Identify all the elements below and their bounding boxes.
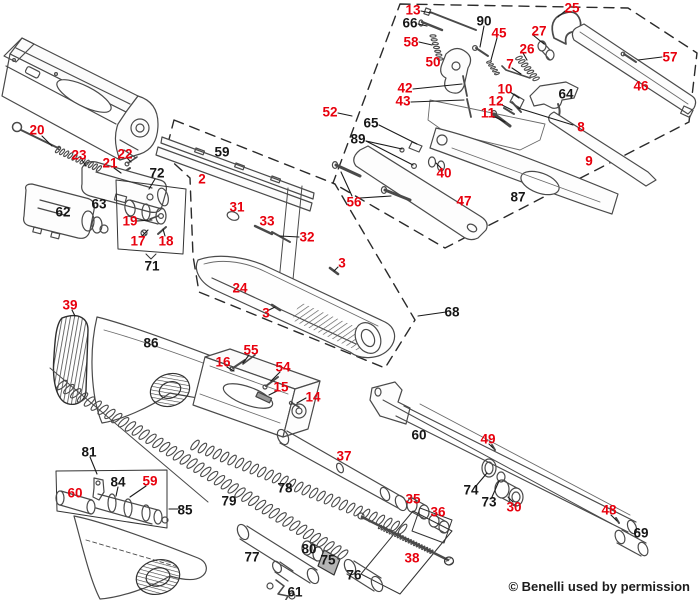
- exploded-diagram: 2023212272592626319171871398631333232436…: [0, 0, 700, 600]
- action-bars-drawing: [156, 137, 314, 211]
- valve-box-85-drawing: [56, 470, 168, 528]
- bottom-parts-row-drawing: [235, 523, 385, 600]
- receiver-drawing: [2, 38, 158, 160]
- pin-20-drawing: [13, 123, 61, 150]
- diagram-line-art: [0, 0, 700, 600]
- trigger-group-drawing: [332, 8, 695, 240]
- copyright-credit: © Benelli used by permission: [508, 579, 690, 594]
- trigger-group-dashed-outline: [333, 4, 697, 248]
